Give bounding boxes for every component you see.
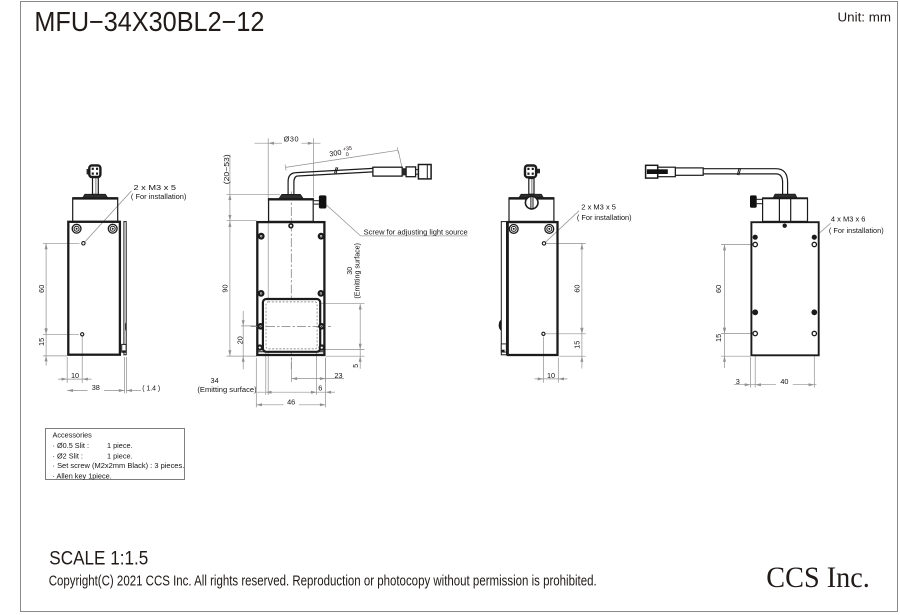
svg-text:· Ø2 Slit :: · Ø2 Slit : (53, 451, 83, 460)
svg-text:1 piece.: 1 piece. (107, 451, 133, 460)
svg-text:15: 15 (573, 341, 582, 349)
svg-text:30: 30 (347, 267, 354, 275)
svg-text:Ø30: Ø30 (284, 134, 300, 143)
svg-text:3: 3 (736, 377, 740, 386)
svg-text:Copyright(C) 2021 CCS Inc. All: Copyright(C) 2021 CCS Inc. All rights re… (49, 574, 597, 590)
svg-text:· Set screw (M2x2mm Black) :: · Set screw (M2x2mm Black) : 3 pieces. (53, 461, 185, 470)
svg-text:(Emitting surface): (Emitting surface) (197, 387, 256, 394)
svg-text:300: 300 (329, 148, 342, 159)
svg-text:10: 10 (71, 371, 79, 380)
svg-text:2 x M3 x 5: 2 x M3 x 5 (581, 203, 616, 212)
svg-text:(20~53): (20~53) (224, 154, 231, 184)
svg-text:40: 40 (780, 377, 788, 386)
svg-text:( For installation): ( For installation) (577, 213, 632, 222)
svg-text:20: 20 (235, 336, 244, 344)
svg-text:4 x M3 x 6: 4 x M3 x 6 (831, 215, 866, 224)
svg-text:10: 10 (547, 371, 555, 380)
svg-text:5: 5 (353, 364, 360, 368)
svg-text:(Emitting surface): (Emitting surface) (355, 243, 362, 299)
svg-text:1 piece.: 1 piece. (107, 441, 133, 450)
svg-text:15: 15 (714, 334, 723, 342)
svg-text:Accessories: Accessories (53, 431, 93, 440)
svg-text:Screw for adjusting light sour: Screw for adjusting light source (364, 228, 468, 237)
svg-text:2 x M3 x 5: 2 x M3 x 5 (134, 183, 177, 192)
svg-text:60: 60 (573, 285, 582, 293)
svg-text:· Allen key 1piece.: · Allen key 1piece. (53, 472, 112, 481)
svg-text:15: 15 (37, 338, 46, 346)
svg-text:6: 6 (318, 384, 322, 393)
svg-text:MFU−34X30BL2−12: MFU−34X30BL2−12 (34, 6, 264, 37)
svg-text:46: 46 (287, 397, 295, 406)
svg-text:SCALE 1:1.5: SCALE 1:1.5 (49, 547, 148, 569)
svg-text:60: 60 (37, 285, 46, 293)
svg-text:( 1.4 ): ( 1.4 ) (142, 385, 160, 392)
svg-text:( For installation): ( For installation) (829, 226, 884, 235)
svg-text:38: 38 (92, 383, 100, 392)
svg-text:CCS Inc.: CCS Inc. (766, 562, 870, 594)
svg-text:34: 34 (211, 376, 219, 385)
svg-text:23: 23 (335, 371, 343, 380)
svg-text:· Ø0.5 Slit :: · Ø0.5 Slit : (53, 441, 90, 450)
svg-text:90: 90 (221, 284, 230, 292)
svg-text:60: 60 (714, 285, 723, 293)
svg-text:( For installation): ( For installation) (131, 192, 187, 201)
svg-text:Unit: mm: Unit: mm (838, 10, 892, 25)
